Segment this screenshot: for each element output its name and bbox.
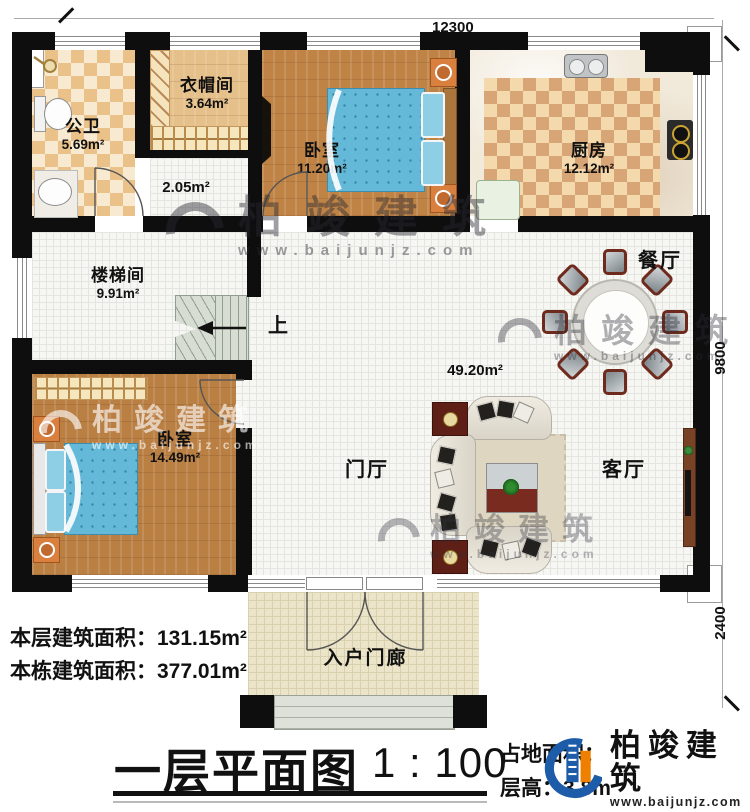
kitchen-sink-icon — [564, 54, 608, 78]
brand-name: 柏竣建筑 — [610, 730, 750, 795]
building-area-line: 本栋建筑面积：377.01m² — [10, 655, 247, 685]
room-label-porch: 入户门廊 — [308, 648, 423, 670]
dimension-porch: 2400 — [712, 593, 728, 653]
room-label-bedroom-left: 卧室 14.49m² — [135, 430, 215, 465]
wall-bathroom-cloakroom — [135, 50, 150, 158]
floor-area-label: 本层建筑面积： — [10, 627, 157, 650]
stove-icon — [667, 120, 693, 160]
window — [170, 32, 260, 50]
room-label-kitchen: 厨房 12.12m² — [549, 141, 629, 176]
porch-column — [453, 695, 487, 728]
window — [528, 32, 640, 50]
window — [55, 32, 125, 50]
porch-steps — [274, 695, 455, 730]
dimension-height: 9800 — [712, 328, 728, 388]
sofa-pillow — [501, 540, 521, 560]
floor-plan: 12300 9800 2400 — [0, 0, 750, 812]
bedroom-left-wardrobe — [34, 377, 148, 400]
dimension-tick — [724, 695, 740, 711]
room-label-bathroom: 公卫 5.69m² — [43, 117, 123, 152]
porch-column — [240, 695, 274, 728]
building-area-value: 377.01m² — [157, 660, 247, 683]
dining-chair — [603, 249, 627, 275]
room-label-living: 客厅 — [589, 459, 659, 482]
pillow-icon — [45, 449, 66, 491]
wall-bedroom-left-right — [236, 374, 252, 380]
room-label-hallway: 2.05m² — [146, 179, 226, 196]
nightstand-icon — [33, 537, 60, 563]
door-opening-bathroom — [95, 216, 143, 232]
title-underline — [113, 791, 487, 796]
nightstand-icon — [33, 416, 60, 442]
stairs-up-label: 上 — [264, 315, 294, 338]
dining-chair — [662, 310, 688, 334]
nightstand-icon — [430, 184, 457, 213]
tv-icon — [262, 96, 271, 164]
sofa-pillow — [436, 445, 456, 465]
window-bedroom-left — [72, 575, 208, 592]
wall-stairwell-right — [247, 232, 261, 297]
window-living — [437, 575, 660, 592]
sink-icon — [38, 178, 72, 206]
plant-icon — [503, 479, 519, 495]
fridge-icon — [476, 180, 520, 220]
pillow-icon — [421, 92, 445, 138]
cloakroom-wardrobe — [150, 126, 249, 152]
stairs-treads — [213, 295, 249, 363]
door-opening-bedroom-top — [263, 216, 307, 232]
dining-chair — [542, 310, 568, 334]
dimension-tick — [58, 7, 74, 23]
entry-door-leaf — [366, 577, 423, 590]
room-label-cloakroom: 衣帽间 3.64m² — [162, 76, 252, 111]
dining-chair — [603, 369, 627, 395]
label-hall-area: 49.20m² — [435, 362, 515, 379]
room-label-bedroom-top: 卧室 11.20m² — [282, 141, 362, 176]
wall-cloakroom-bottom — [135, 150, 262, 158]
title-underline-thin — [113, 801, 487, 803]
floor-area-value: 131.15m² — [157, 627, 247, 650]
dimension-tick — [724, 35, 740, 51]
window — [307, 32, 420, 50]
pillow-icon — [421, 140, 445, 186]
plant-icon — [684, 446, 693, 455]
window-kitchen — [693, 75, 710, 215]
wall-bedroom-top-left — [248, 50, 262, 216]
side-table-icon — [432, 540, 468, 574]
tv-icon — [685, 470, 691, 516]
porch-floor — [248, 592, 479, 695]
bed-blanket-icon — [64, 443, 138, 535]
scale-label: 1 : 100 — [372, 739, 507, 787]
side-table-icon — [432, 402, 468, 436]
wall-stairwell-bottom — [12, 360, 252, 374]
room-label-foyer: 门厅 — [332, 459, 402, 482]
dimension-line-top — [14, 18, 714, 19]
building-area-label: 本栋建筑面积： — [10, 660, 157, 683]
window-entry-side — [248, 575, 305, 592]
bed-blanket-icon — [327, 88, 425, 192]
floor-area-line: 本层建筑面积：131.15m² — [10, 622, 247, 652]
sofa-pillow — [439, 513, 458, 532]
brand-logo: 柏竣建筑 www.baijunjz.com — [541, 730, 750, 809]
wall-bedroom-left-right — [236, 428, 252, 575]
window-stairwell — [12, 258, 32, 338]
pillow-icon — [45, 491, 66, 533]
brand-url: www.baijunjz.com — [610, 795, 750, 809]
nightstand-icon — [430, 58, 457, 87]
room-label-dining: 餐厅 — [625, 250, 695, 273]
headboard-icon — [443, 88, 457, 192]
entry-door-leaf — [306, 577, 363, 590]
room-label-stairwell: 楼梯间 9.91m² — [78, 266, 158, 301]
dining-table-icon — [572, 279, 658, 365]
brand-logo-icon — [541, 730, 602, 808]
wall-bedroom-kitchen — [455, 50, 470, 216]
